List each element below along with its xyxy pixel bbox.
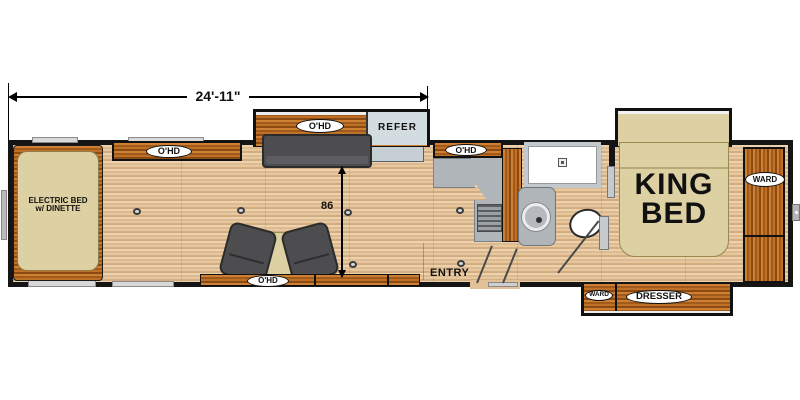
dimension-length-label: 24'-11" — [187, 88, 248, 104]
floorplan-canvas: 24'-11" ELECTRIC BED w/ DINETTE O'HD REF… — [0, 0, 800, 400]
refrigerator: REFER — [366, 112, 427, 145]
ward-text: WARD — [589, 292, 609, 299]
overhead-cabinet-tv-label: O'HD — [247, 275, 289, 287]
dimension-arrow-up-icon — [338, 166, 346, 174]
electric-bed-label-line2: w/ DINETTE — [17, 205, 99, 213]
sofa — [262, 134, 372, 168]
light-fixture-icon — [344, 209, 352, 216]
dimension-line-width — [341, 170, 343, 277]
bathroom-door-jamb — [599, 216, 609, 250]
floor-seam — [423, 243, 424, 280]
shower-drain-icon — [558, 158, 567, 167]
light-fixture-icon — [133, 208, 141, 215]
ohd-text: O'HD — [309, 122, 331, 131]
ohd-text: O'HD — [456, 146, 477, 155]
pocket-door — [607, 166, 615, 198]
window — [32, 137, 78, 143]
overhead-cabinet-garage-label: O'HD — [146, 145, 192, 158]
ward-text: WARD — [753, 176, 777, 184]
kitchen-counter-top — [433, 158, 475, 188]
king-bed-label-line1: KING — [635, 171, 714, 200]
ohd-text: O'HD — [258, 277, 278, 285]
overhead-cabinet-living-label: O'HD — [296, 119, 344, 133]
dimension-width-label: 86 — [321, 201, 333, 213]
dresser-text: DRESSER — [636, 292, 682, 302]
king-bed: KING BED — [619, 142, 729, 257]
wardrobe-cabinet — [743, 147, 785, 283]
dresser-label: DRESSER — [626, 290, 692, 304]
king-bed-label-line2: BED — [641, 200, 707, 229]
light-fixture-icon — [456, 207, 464, 214]
window — [28, 280, 96, 287]
electric-bed-label: ELECTRIC BED w/ DINETTE — [17, 197, 99, 214]
bathroom-sink — [522, 203, 550, 231]
tv-cabinet — [200, 274, 420, 286]
light-fixture-icon — [237, 207, 245, 214]
refrigerator-base — [368, 147, 424, 162]
window — [112, 281, 174, 287]
entry-label: ENTRY — [430, 268, 469, 280]
refrigerator-label: REFER — [378, 123, 417, 134]
light-fixture-icon — [349, 261, 357, 268]
exterior-bracket — [792, 204, 800, 221]
wardrobe-label: WARD — [745, 172, 785, 187]
ohd-text: O'HD — [158, 147, 180, 156]
overhead-cabinet-kitchen-label: O'HD — [445, 144, 487, 156]
dimension-arrow-down-icon — [338, 270, 346, 278]
light-fixture-icon — [457, 260, 465, 267]
range-cooktop — [477, 204, 502, 232]
closet-label: WARD — [585, 290, 613, 301]
ramp-door-hinge — [1, 190, 7, 240]
dimension-length-labelwrap: 24'-11" — [8, 88, 428, 106]
